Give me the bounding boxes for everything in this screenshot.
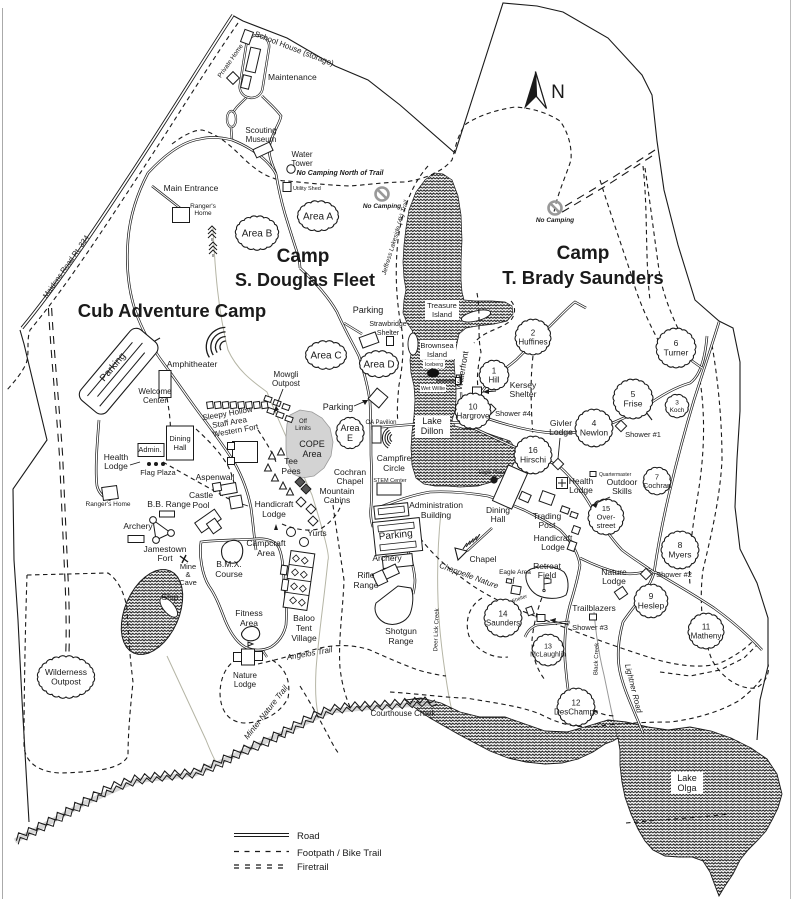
svg-text:Frise: Frise — [624, 399, 643, 409]
svg-text:Museum: Museum — [246, 135, 277, 144]
svg-text:2: 2 — [531, 328, 536, 337]
svg-text:Road: Road — [297, 831, 320, 842]
svg-text:Course: Course — [215, 569, 243, 579]
svg-text:Hill: Hill — [488, 375, 499, 384]
svg-text:Field: Field — [538, 570, 557, 580]
svg-text:Shower #4: Shower #4 — [495, 409, 531, 418]
svg-text:Huffines: Huffines — [518, 337, 547, 346]
svg-text:E: E — [347, 433, 353, 443]
svg-text:Off: Off — [299, 419, 307, 425]
svg-text:Koch: Koch — [670, 407, 685, 414]
svg-text:Mowgli: Mowgli — [274, 370, 299, 379]
svg-text:Area: Area — [257, 548, 275, 558]
svg-text:Wilderness: Wilderness — [45, 667, 87, 677]
svg-text:Chapel: Chapel — [470, 554, 497, 564]
svg-text:Dillon: Dillon — [421, 426, 444, 436]
svg-text:N: N — [551, 82, 565, 103]
svg-text:Saunders: Saunders — [486, 618, 520, 627]
svg-text:Maintenance: Maintenance — [268, 72, 317, 82]
svg-text:Shelter: Shelter — [510, 389, 537, 399]
svg-text:Hall: Hall — [491, 514, 506, 524]
svg-text:Baloo: Baloo — [293, 613, 315, 623]
svg-text:4: 4 — [592, 418, 597, 428]
svg-text:Newlon: Newlon — [580, 428, 609, 438]
svg-text:No Camping: No Camping — [536, 217, 574, 224]
svg-text:Camp: Camp — [277, 246, 330, 267]
svg-text:Outpost: Outpost — [272, 379, 301, 388]
svg-text:Yurts: Yurts — [307, 528, 326, 538]
svg-text:Island: Island — [427, 350, 447, 359]
svg-text:Range: Range — [388, 636, 413, 646]
svg-text:Myers: Myers — [668, 550, 691, 560]
svg-text:Camp: Camp — [557, 243, 610, 264]
svg-text:Campfire: Campfire — [377, 453, 412, 463]
svg-text:Archery: Archery — [123, 521, 153, 531]
svg-text:Lodge: Lodge — [262, 509, 286, 519]
svg-text:Courthouse Creek: Courthouse Creek — [371, 709, 437, 718]
svg-text:Archery: Archery — [372, 553, 402, 563]
svg-text:Turner: Turner — [664, 348, 689, 358]
svg-text:Home: Home — [194, 210, 212, 217]
svg-text:No Camping North of Trail: No Camping North of Trail — [297, 170, 385, 177]
svg-text:Ship: Ship — [161, 592, 178, 602]
svg-text:Lodge: Lodge — [569, 485, 593, 495]
svg-text:Trailblazers: Trailblazers — [572, 603, 616, 613]
svg-text:Fitness: Fitness — [235, 608, 262, 618]
svg-text:16: 16 — [528, 445, 538, 455]
svg-text:Heslep: Heslep — [638, 601, 665, 611]
svg-text:8: 8 — [678, 540, 683, 550]
svg-text:McLaughlin: McLaughlin — [530, 651, 566, 658]
svg-text:Ranger's: Ranger's — [190, 203, 217, 210]
svg-text:Eagle Plaza: Eagle Plaza — [479, 470, 506, 476]
svg-text:Area: Area — [302, 449, 321, 459]
svg-text:Hirschi: Hirschi — [520, 455, 546, 465]
svg-text:Aspenwall: Aspenwall — [196, 472, 235, 482]
svg-text:Water: Water — [291, 150, 312, 159]
svg-text:Area: Area — [340, 423, 359, 433]
svg-text:Flag Plaza: Flag Plaza — [140, 468, 176, 477]
svg-text:Building: Building — [421, 510, 452, 520]
svg-text:13: 13 — [544, 643, 552, 650]
svg-text:Tent: Tent — [296, 623, 313, 633]
svg-text:Nature: Nature — [233, 671, 258, 680]
svg-text:Lodge: Lodge — [541, 542, 565, 552]
svg-text:Tee: Tee — [284, 456, 298, 466]
svg-text:Lodge: Lodge — [104, 461, 128, 471]
svg-text:Village: Village — [291, 633, 317, 643]
svg-text:Campcraft: Campcraft — [246, 538, 286, 548]
svg-text:Cave: Cave — [179, 578, 197, 587]
svg-text:Administration: Administration — [409, 500, 463, 510]
svg-text:11: 11 — [702, 622, 711, 631]
svg-text:Wet Willie: Wet Willie — [421, 386, 445, 392]
svg-text:Admin.: Admin. — [138, 445, 161, 454]
svg-text:Utility Shed: Utility Shed — [293, 186, 321, 192]
svg-text:Parking: Parking — [323, 402, 354, 412]
svg-text:Center: Center — [143, 396, 167, 405]
svg-text:Shower #2: Shower #2 — [656, 570, 692, 579]
svg-text:14: 14 — [499, 609, 508, 618]
svg-text:Strawbridge: Strawbridge — [369, 321, 406, 328]
svg-text:6: 6 — [674, 338, 679, 348]
svg-text:STEM Center: STEM Center — [373, 478, 406, 484]
svg-text:Shower #3: Shower #3 — [572, 623, 608, 632]
svg-text:Skills: Skills — [612, 486, 632, 496]
svg-text:Lodge: Lodge — [602, 576, 626, 586]
svg-text:Shower #1: Shower #1 — [625, 430, 661, 439]
svg-text:Iceberg: Iceberg — [425, 362, 443, 368]
svg-text:Outpost: Outpost — [51, 677, 81, 687]
svg-text:Shotgun: Shotgun — [385, 626, 417, 636]
svg-text:Hall: Hall — [174, 443, 187, 452]
svg-text:1: 1 — [492, 366, 497, 375]
svg-text:Shelter: Shelter — [377, 330, 400, 337]
svg-text:T. Brady Saunders: T. Brady Saunders — [502, 267, 663, 288]
svg-text:S. Douglas Fleet: S. Douglas Fleet — [235, 270, 375, 290]
svg-text:Treasure: Treasure — [427, 301, 457, 310]
svg-text:Pool: Pool — [192, 500, 209, 510]
svg-text:Scouting: Scouting — [245, 126, 276, 135]
svg-text:Cabins: Cabins — [324, 495, 350, 505]
svg-text:5: 5 — [631, 389, 636, 399]
svg-text:Area C: Area C — [310, 351, 341, 362]
svg-text:Pees: Pees — [281, 466, 300, 476]
svg-text:Cub Adventure Camp: Cub Adventure Camp — [78, 300, 266, 321]
svg-text:Welcome: Welcome — [138, 387, 172, 396]
svg-text:Castle: Castle — [189, 490, 213, 500]
svg-text:Circle: Circle — [383, 463, 405, 473]
svg-text:street: street — [597, 521, 617, 530]
svg-text:Lake: Lake — [422, 416, 442, 426]
svg-text:Range: Range — [353, 580, 378, 590]
svg-text:Parking: Parking — [353, 305, 384, 315]
svg-text:Footpath / Bike Trail: Footpath / Bike Trail — [297, 848, 381, 859]
svg-text:Rifle: Rifle — [357, 570, 374, 580]
svg-text:Ranger's Home: Ranger's Home — [86, 501, 131, 508]
svg-text:Main Entrance: Main Entrance — [164, 183, 219, 193]
svg-text:Limits: Limits — [295, 426, 311, 432]
svg-text:Brownsea: Brownsea — [420, 341, 454, 350]
svg-text:Area B: Area B — [242, 229, 273, 240]
svg-text:Tower: Tower — [291, 159, 313, 168]
svg-text:Handicraft: Handicraft — [255, 499, 294, 509]
svg-text:DesChamps: DesChamps — [554, 707, 598, 716]
svg-text:Chapel: Chapel — [337, 476, 364, 486]
svg-text:Hargrove: Hargrove — [457, 411, 490, 420]
svg-text:B.B. Range: B.B. Range — [147, 499, 191, 509]
svg-text:Lake: Lake — [677, 773, 697, 783]
svg-text:Area D: Area D — [363, 360, 394, 371]
svg-text:Cochran: Cochran — [643, 481, 671, 490]
svg-text:Area A: Area A — [303, 212, 333, 223]
svg-text:Post: Post — [538, 520, 556, 530]
svg-text:Firetrail: Firetrail — [297, 862, 329, 873]
svg-text:B.M.X.: B.M.X. — [216, 559, 242, 569]
svg-text:Olga: Olga — [677, 783, 696, 793]
svg-text:Dining: Dining — [169, 434, 190, 443]
svg-text:10: 10 — [469, 402, 478, 411]
svg-text:9: 9 — [649, 591, 654, 601]
svg-text:OA Pavilion: OA Pavilion — [365, 420, 396, 426]
svg-text:No Camping: No Camping — [363, 203, 401, 210]
svg-text:Island: Island — [432, 310, 452, 319]
svg-text:Fort: Fort — [157, 553, 173, 563]
svg-text:Area: Area — [240, 618, 258, 628]
svg-text:12: 12 — [572, 698, 581, 707]
svg-text:Amphitheater: Amphitheater — [167, 359, 218, 369]
svg-text:Black Creek: Black Creek — [593, 642, 600, 676]
svg-text:3: 3 — [675, 400, 679, 407]
svg-text:Lodge: Lodge — [234, 680, 257, 689]
svg-text:Matheny: Matheny — [691, 631, 722, 640]
svg-text:Eagle Area: Eagle Area — [499, 569, 531, 576]
svg-text:COPE: COPE — [299, 439, 325, 449]
svg-text:Lodge: Lodge — [549, 427, 573, 437]
